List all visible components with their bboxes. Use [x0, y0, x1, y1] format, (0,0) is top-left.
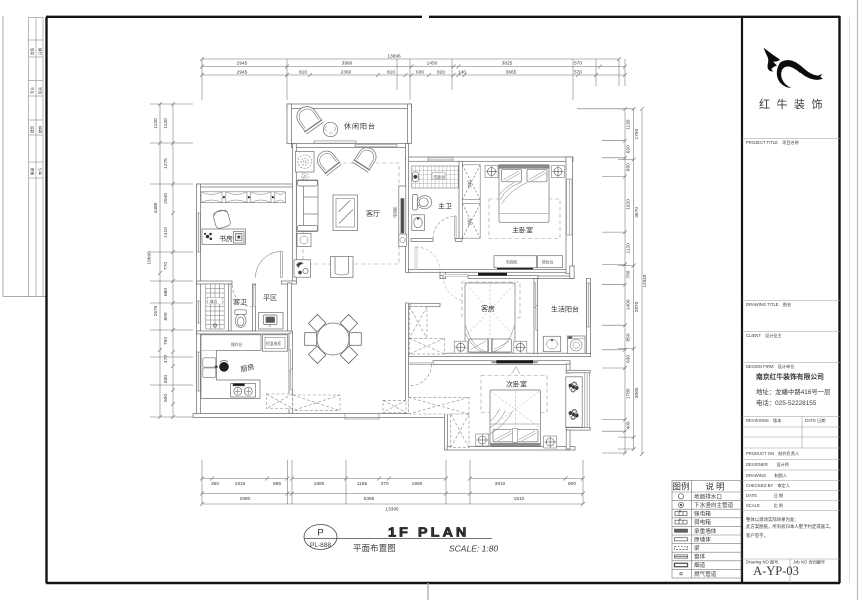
svg-text:600: 600 — [568, 481, 576, 487]
svg-text:370: 370 — [380, 481, 388, 487]
svg-text:淋浴: 淋浴 — [210, 299, 218, 304]
svg-text:CLIENT 设计业主: CLIENT 设计业主 — [746, 332, 782, 339]
svg-text:平面布置图: 平面布置图 — [353, 543, 396, 553]
svg-text:衣柜: 衣柜 — [467, 180, 472, 188]
svg-text:电视机: 电视机 — [393, 206, 398, 218]
svg-text:SCALE: 1:80: SCALE: 1:80 — [449, 544, 498, 554]
svg-text:2945: 2945 — [237, 61, 248, 67]
svg-text:630: 630 — [416, 69, 424, 75]
svg-text:1400: 1400 — [626, 299, 632, 310]
svg-text:10690: 10690 — [147, 251, 153, 265]
svg-text:生活阳台: 生活阳台 — [551, 305, 579, 314]
svg-text:电话：025-52228155: 电话：025-52228155 — [756, 398, 817, 407]
svg-text:DESIGN FIRM 设计单位: DESIGN FIRM 设计单位 — [746, 363, 794, 370]
svg-text:REVISIONS 版本: REVISIONS 版本 — [746, 417, 782, 424]
svg-text:DRAWING 制图人: DRAWING 制图人 — [746, 472, 788, 479]
svg-text:4485: 4485 — [153, 202, 159, 213]
svg-text:1920: 1920 — [626, 199, 632, 210]
svg-text:梳妆台: 梳妆台 — [542, 260, 554, 265]
svg-text:3980: 3980 — [342, 61, 353, 67]
svg-text:操作台: 操作台 — [231, 342, 243, 347]
svg-text:13696: 13696 — [387, 53, 401, 59]
svg-text:平区: 平区 — [263, 294, 277, 302]
svg-text:说明: 说明 — [705, 481, 726, 492]
svg-text:燃气管道: 燃气管道 — [694, 570, 717, 578]
svg-text:恒温电柜: 恒温电柜 — [266, 341, 281, 346]
svg-text:1275: 1275 — [163, 158, 169, 169]
svg-text:客厅: 客厅 — [366, 209, 380, 218]
svg-text:350: 350 — [211, 481, 219, 487]
svg-text:810: 810 — [299, 69, 307, 75]
svg-text:DRAWING TITLE 图名: DRAWING TITLE 图名 — [746, 301, 791, 308]
svg-text:窗体: 窗体 — [694, 553, 706, 561]
svg-text:1960: 1960 — [412, 481, 423, 487]
svg-text:图例: 图例 — [672, 481, 689, 492]
svg-text:红牛装饰: 红牛装饰 — [759, 97, 829, 111]
svg-text:1410: 1410 — [163, 227, 169, 238]
svg-text:3910: 3910 — [495, 481, 506, 487]
svg-text:地址：龙蟠中路416号一层: 地址：龙蟠中路416号一层 — [756, 387, 831, 396]
svg-text:620: 620 — [626, 145, 632, 153]
svg-text:下水竖向主管道: 下水竖向主管道 — [694, 501, 734, 509]
svg-text:CHECKED BY 审定人: CHECKED BY 审定人 — [746, 482, 791, 489]
svg-text:地面排水口: 地面排水口 — [694, 492, 722, 500]
svg-text:专业: 专业 — [30, 87, 35, 95]
svg-text:1130: 1130 — [163, 118, 169, 129]
svg-text:1130: 1130 — [153, 118, 159, 129]
svg-text:烟道: 烟道 — [694, 561, 706, 569]
svg-text:1880: 1880 — [314, 481, 325, 487]
svg-text:此方案图纸，所有权归本人墅予约定或施工。: 此方案图纸，所有权归本人墅予约定或施工。 — [746, 523, 834, 530]
svg-text:DESIGNER 设计师: DESIGNER 设计师 — [746, 461, 789, 468]
svg-text:客房: 客房 — [481, 304, 495, 313]
svg-text:470: 470 — [163, 355, 169, 363]
svg-text:700: 700 — [626, 270, 632, 278]
svg-text:A-YP-03: A-YP-03 — [753, 564, 799, 578]
svg-text:客户签字。: 客户签字。 — [746, 532, 768, 539]
svg-text:13395: 13395 — [385, 507, 399, 513]
svg-text:强电箱: 强电箱 — [694, 510, 711, 518]
svg-text:1155: 1155 — [357, 481, 368, 487]
svg-text:暖通: 暖通 — [30, 168, 35, 176]
svg-text:电视机: 电视机 — [506, 260, 518, 265]
svg-text:主卫: 主卫 — [438, 202, 452, 211]
svg-text:850: 850 — [626, 333, 632, 341]
svg-text:R: R — [679, 510, 682, 514]
svg-text:650: 650 — [626, 163, 632, 171]
svg-text:3670: 3670 — [634, 207, 640, 218]
svg-text:洗漱台: 洗漱台 — [434, 174, 446, 179]
svg-text:南京红牛装饰有限公司: 南京红牛装饰有限公司 — [756, 372, 824, 381]
svg-text:2870: 2870 — [634, 301, 640, 312]
svg-text:400: 400 — [626, 421, 632, 429]
svg-text:800: 800 — [163, 312, 169, 320]
svg-text:750: 750 — [163, 337, 169, 345]
svg-text:整体以现场实际效果为准：: 整体以现场实际效果为准： — [746, 516, 799, 523]
svg-text:680: 680 — [163, 288, 169, 296]
svg-text:570: 570 — [574, 61, 582, 67]
svg-text:衣柜: 衣柜 — [467, 218, 472, 226]
svg-text:主卧室: 主卧室 — [512, 226, 533, 235]
svg-text:770: 770 — [163, 262, 169, 270]
svg-text:2360: 2360 — [341, 69, 352, 75]
svg-text:2945: 2945 — [237, 69, 248, 75]
svg-text:3665: 3665 — [506, 69, 517, 75]
svg-text:电气: 电气 — [38, 168, 43, 176]
svg-text:弱电箱: 弱电箱 — [694, 518, 711, 526]
svg-text:1120: 1120 — [626, 243, 632, 254]
svg-text:日期: 日期 — [38, 48, 43, 56]
svg-text:1915: 1915 — [235, 481, 246, 487]
svg-text:3825: 3825 — [502, 61, 513, 67]
svg-text:570: 570 — [574, 69, 582, 75]
svg-text:500: 500 — [163, 394, 169, 402]
svg-text:11945: 11945 — [642, 274, 648, 287]
svg-text:书房: 书房 — [219, 234, 233, 243]
svg-text:810: 810 — [387, 69, 395, 75]
svg-text:2675: 2675 — [153, 305, 159, 316]
svg-text:830: 830 — [163, 375, 169, 383]
svg-text:PROJECT TITLE 项目名称: PROJECT TITLE 项目名称 — [746, 139, 799, 146]
svg-text:会签: 会签 — [30, 48, 35, 56]
svg-text:1450: 1450 — [427, 61, 438, 67]
svg-text:签名: 签名 — [38, 87, 43, 95]
svg-text:2980: 2980 — [240, 496, 251, 502]
svg-text:2040: 2040 — [163, 193, 169, 204]
svg-text:820: 820 — [437, 69, 445, 75]
svg-text:PRODUCT ON 制作负责人: PRODUCT ON 制作负责人 — [746, 450, 800, 457]
svg-text:承重墙体: 承重墙体 — [694, 527, 717, 535]
svg-text:1510: 1510 — [514, 496, 525, 502]
svg-text:1130: 1130 — [626, 119, 632, 130]
svg-text:1750: 1750 — [634, 128, 640, 139]
svg-text:P: P — [317, 528, 323, 539]
svg-text:685: 685 — [273, 481, 281, 487]
svg-text:5365: 5365 — [364, 496, 375, 502]
svg-text:1F PLAN: 1F PLAN — [388, 524, 469, 539]
svg-text:PL-888: PL-888 — [310, 542, 331, 549]
svg-text:1785: 1785 — [626, 388, 632, 399]
svg-text:建筑: 建筑 — [30, 126, 35, 134]
svg-text:客卫: 客卫 — [233, 298, 247, 307]
svg-text:630: 630 — [626, 355, 632, 363]
svg-text:次卧室: 次卧室 — [506, 380, 527, 389]
svg-text:休闲阳台: 休闲阳台 — [344, 122, 376, 131]
svg-text:结构: 结构 — [38, 126, 43, 134]
svg-text:原墙体: 原墙体 — [694, 535, 711, 543]
svg-text:3065: 3065 — [634, 387, 640, 398]
svg-text:梁: 梁 — [694, 544, 700, 552]
svg-text:SCALE 比 例: SCALE 比 例 — [746, 502, 783, 509]
svg-text:140: 140 — [458, 69, 466, 75]
